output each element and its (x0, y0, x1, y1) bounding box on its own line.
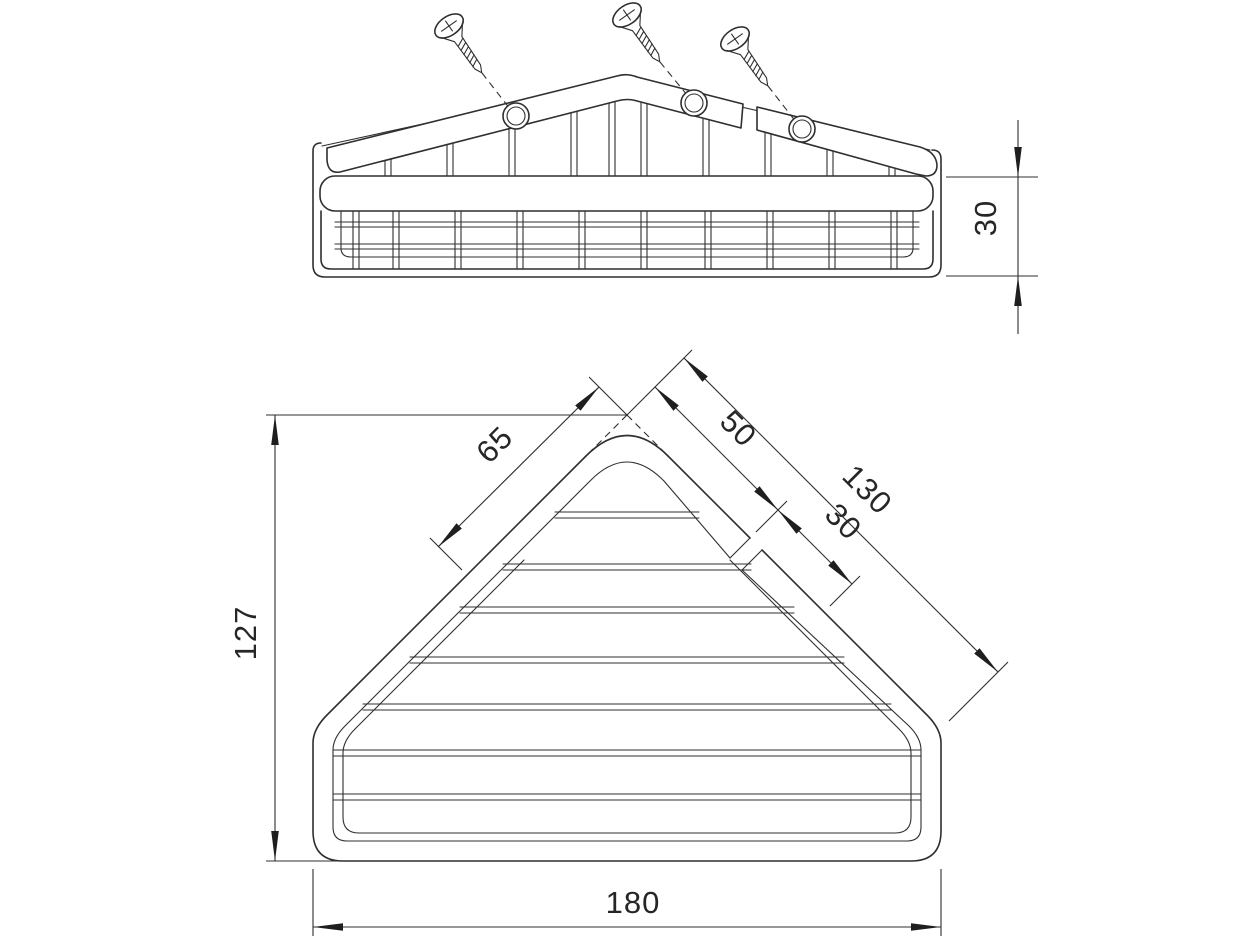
mounting-rail-left (327, 75, 743, 173)
floor-wires (333, 512, 921, 800)
dimension-right-rail: 50 30 130 (627, 350, 1008, 721)
plan-view: 65 50 30 130 127 180 (228, 350, 1008, 936)
screw-icon (608, 0, 672, 71)
dim-depth-label: 127 (228, 606, 263, 661)
dimension-side-height: 30 (946, 120, 1038, 334)
technical-drawing-page: 30 65 50 30 130 (0, 0, 1252, 940)
floor-rim-contour (343, 560, 911, 833)
dim-right-first-label: 50 (713, 403, 764, 454)
dim-width-label: 180 (606, 885, 661, 920)
screw-icon (430, 9, 494, 82)
screw-icon (716, 22, 780, 95)
dim-side-height-label: 30 (968, 200, 1003, 236)
corner-basket-drawing: 30 65 50 30 130 (0, 0, 1252, 940)
dimension-width: 180 (313, 869, 941, 936)
plan-outer-apex-arc (586, 436, 668, 457)
dim-left-rail-label: 65 (469, 419, 520, 470)
mounting-rail-right (757, 107, 937, 176)
basket-vertical-wires (353, 211, 897, 269)
lower-basket (321, 211, 933, 269)
basket-horizontal-wires (335, 222, 919, 249)
top-rim (320, 176, 933, 211)
side-view: 30 (313, 0, 1038, 334)
